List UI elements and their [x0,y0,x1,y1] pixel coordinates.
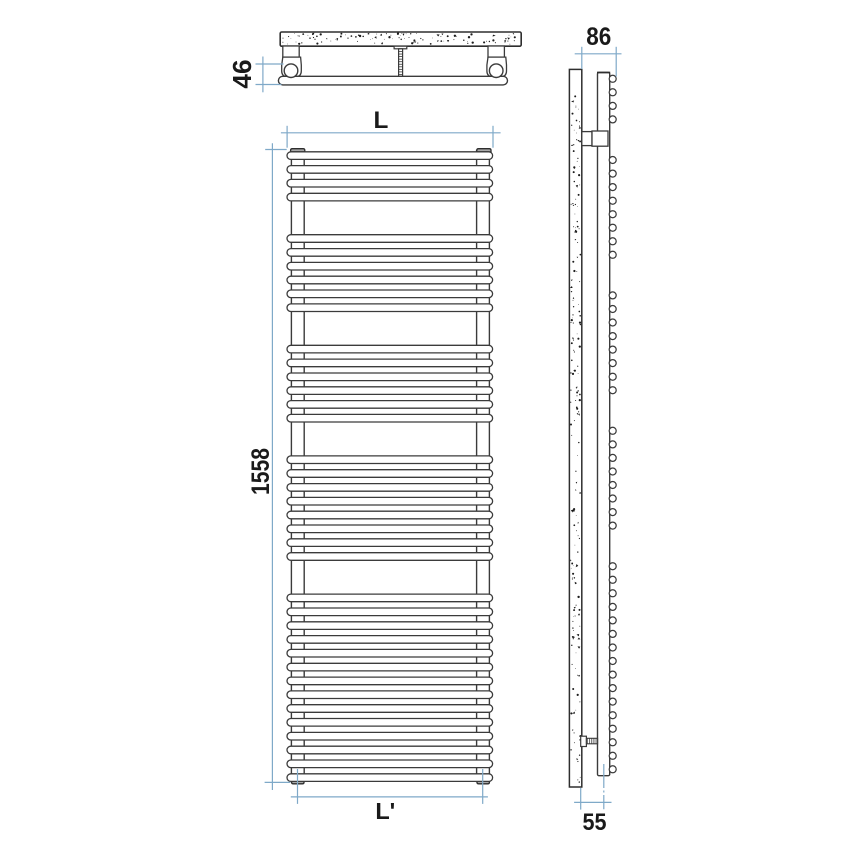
svg-text:86: 86 [586,24,611,51]
svg-text:46: 46 [227,59,257,88]
svg-text:L': L' [375,798,395,824]
svg-text:1558: 1558 [247,448,275,495]
svg-text:L: L [373,107,388,134]
svg-text:55: 55 [583,810,607,836]
